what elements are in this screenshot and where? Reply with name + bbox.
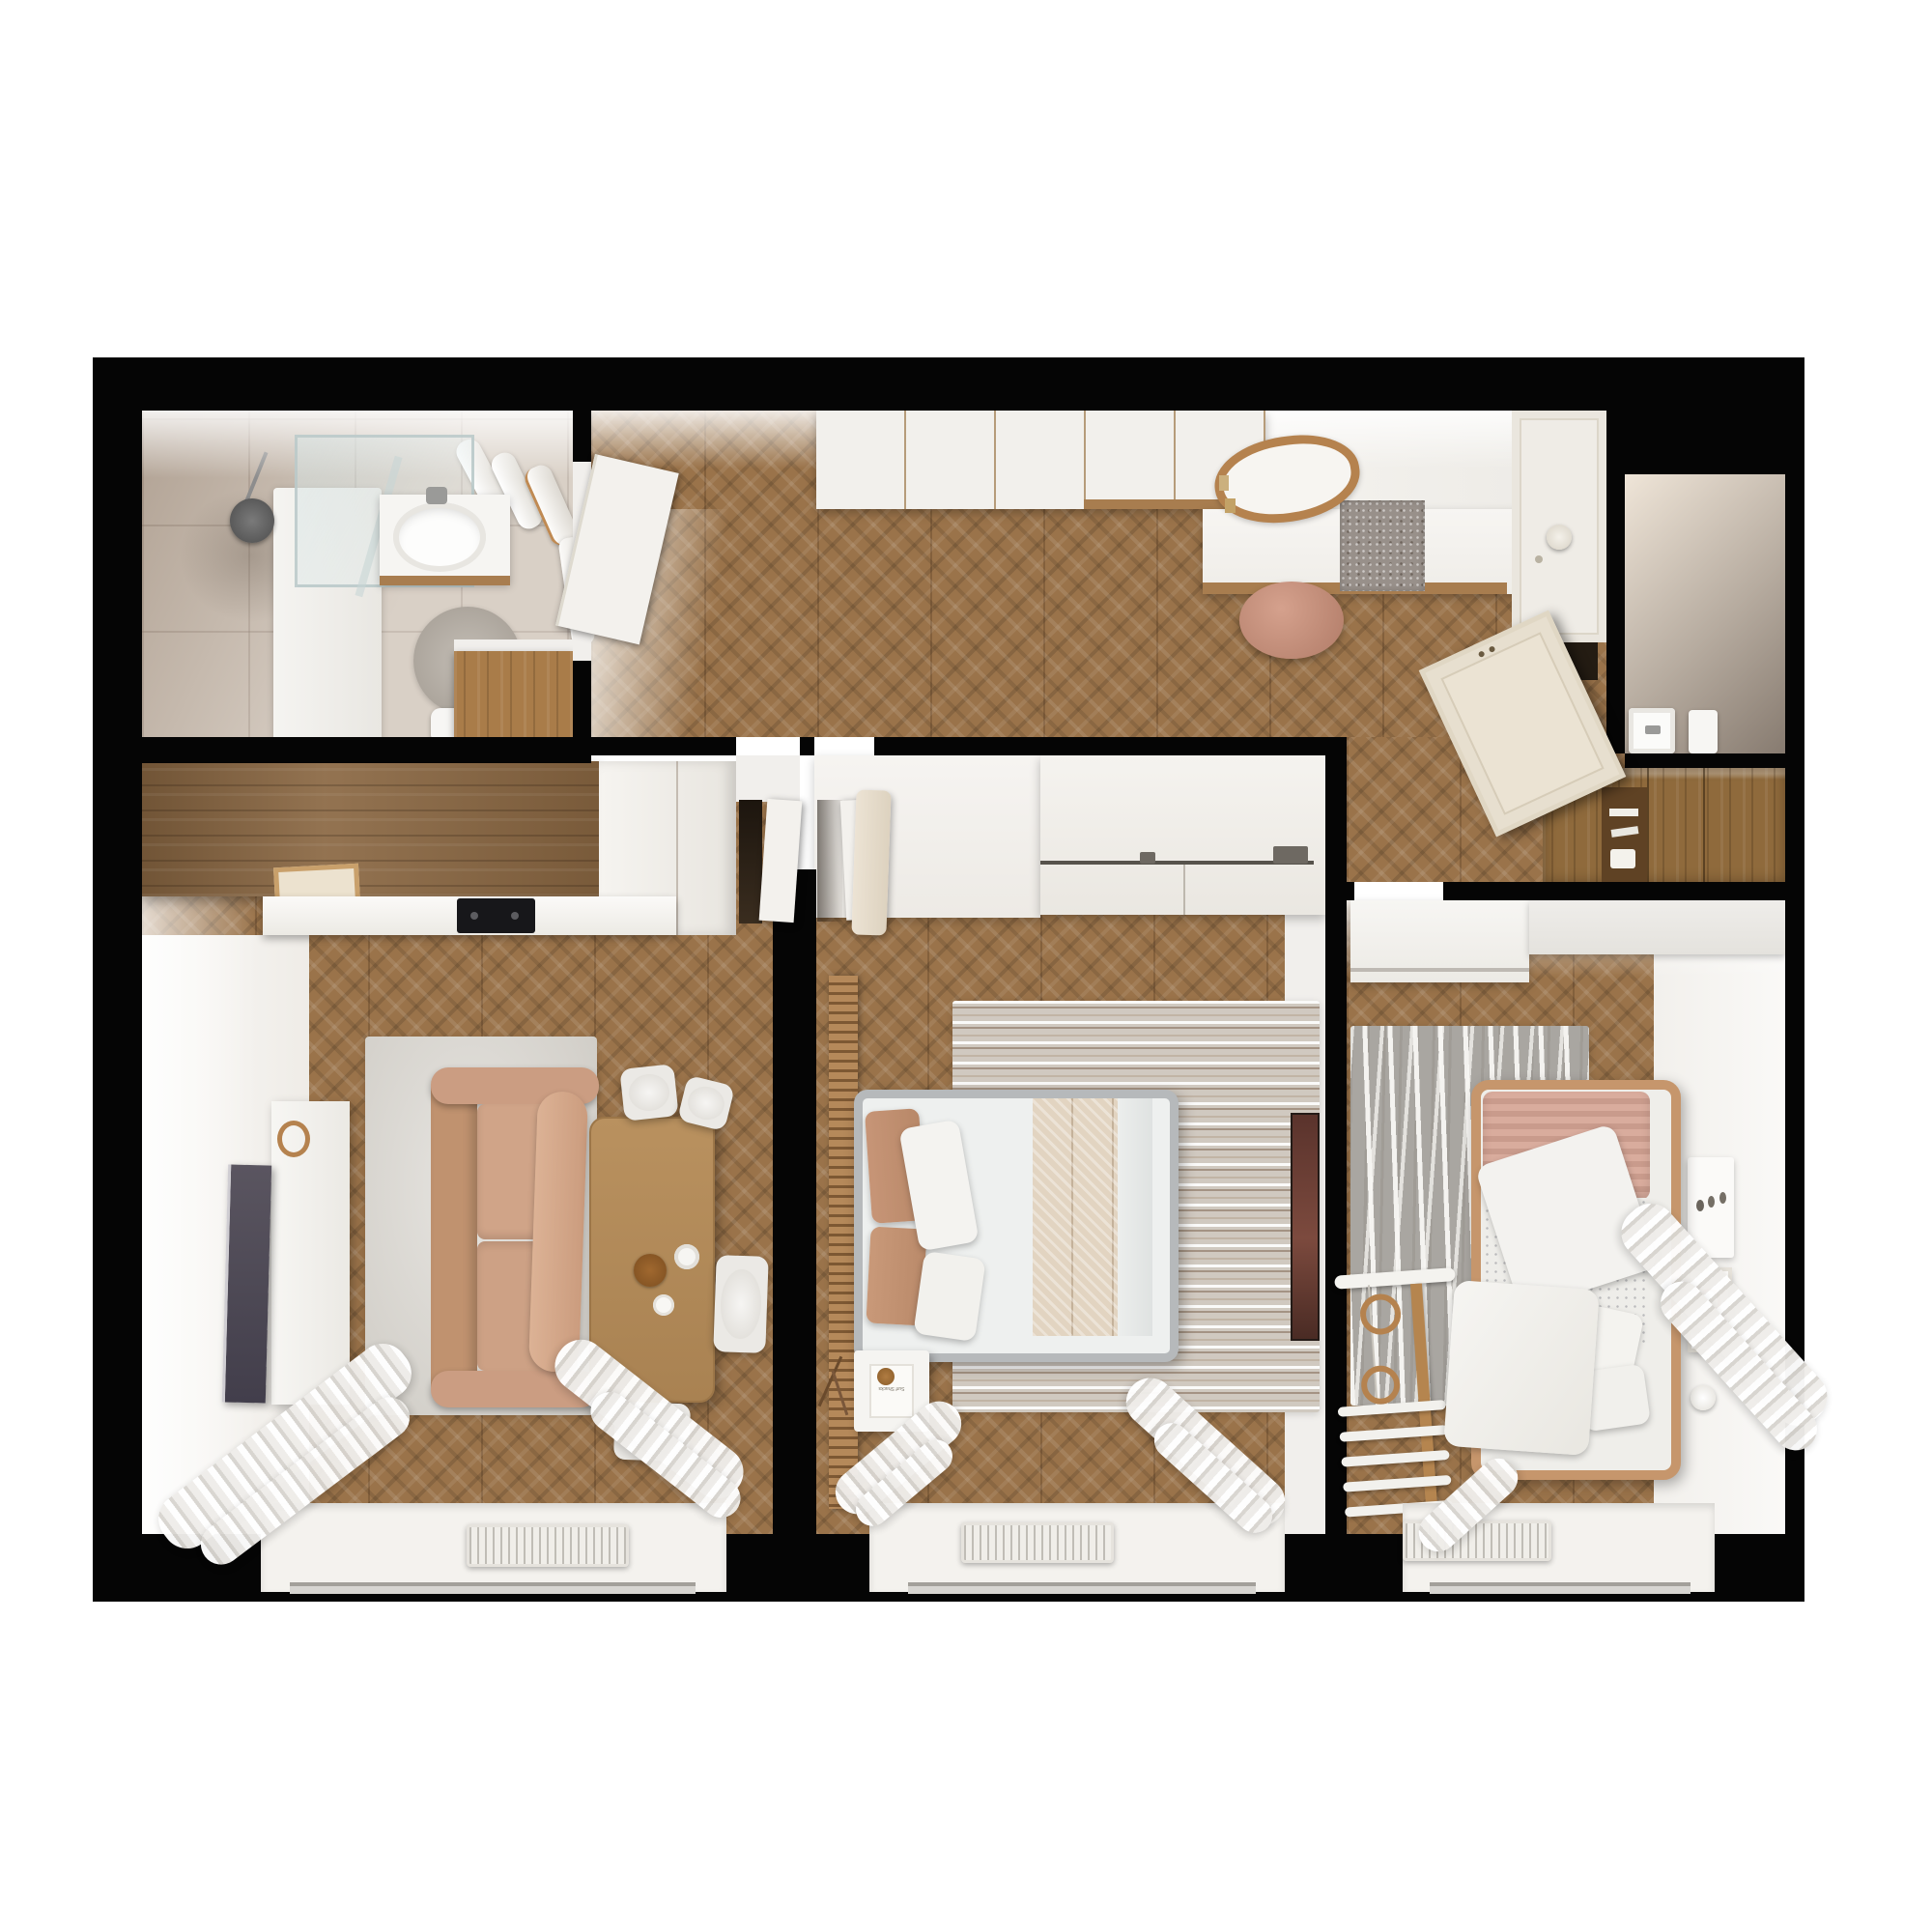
- kids-window-glass: [1430, 1582, 1690, 1594]
- door-keyhole: [1535, 555, 1543, 563]
- book-title: Surf Shacks: [873, 1385, 910, 1391]
- living-door-opening: [739, 800, 762, 923]
- burner-1: [470, 912, 478, 920]
- front-door-face: [1512, 411, 1606, 642]
- wc-fixture: [1689, 710, 1718, 753]
- doormat: [1340, 500, 1425, 591]
- bed-mattress-edge: [1118, 1098, 1152, 1336]
- door-hinge-1: [1478, 650, 1486, 658]
- living-radiator: [467, 1524, 629, 1567]
- perfume-bottle-1: [1219, 475, 1229, 491]
- sliding-wardrobe: [1040, 755, 1325, 915]
- bedroom-radiator: [961, 1522, 1114, 1563]
- ladder-top-bar: [1334, 1267, 1456, 1290]
- sofa-backrest: [431, 1067, 477, 1407]
- wall-left: [93, 357, 142, 1602]
- wall-hall-living: [591, 737, 736, 755]
- cup-on-book: [877, 1368, 895, 1385]
- bedroom-wall-art: [1291, 1113, 1320, 1341]
- cabinet-lip: [1350, 968, 1529, 972]
- rail-hardware-1: [1273, 846, 1308, 864]
- socket-1: [1696, 1200, 1704, 1211]
- book: Surf Shacks: [869, 1364, 914, 1418]
- bedroom-window-glass: [908, 1582, 1256, 1594]
- perfume-bottle-2: [1225, 498, 1236, 513]
- living-window-glass: [290, 1582, 696, 1594]
- wall-bath-hall-lower: [573, 661, 591, 739]
- rail-hardware-2: [1140, 852, 1155, 864]
- sink-faucet: [426, 487, 447, 504]
- dresser-body: [454, 651, 573, 739]
- wardrobe-panel-gap: [1183, 865, 1185, 915]
- wall-wc-bottom: [1625, 753, 1785, 768]
- wall-top: [93, 357, 1804, 411]
- door-hinge-2: [1489, 645, 1496, 653]
- kids-duvet: [1443, 1280, 1600, 1456]
- cabinet-divider-3: [1703, 768, 1705, 882]
- apartment-floorplan-render: Surf Shacks: [0, 0, 1932, 1932]
- stand-handle: [277, 1121, 310, 1157]
- bathroom-dresser: [454, 639, 573, 739]
- gym-ring-2: [1360, 1364, 1402, 1406]
- hanging-coat: [851, 789, 891, 935]
- wc-faucet: [1645, 725, 1661, 734]
- wall-living-bedroom: [773, 869, 816, 1534]
- socket-3: [1719, 1192, 1726, 1204]
- kids-wall-cabinet: [1350, 900, 1529, 982]
- wall-door-post: [800, 737, 814, 755]
- vanity-wood-edge: [380, 576, 510, 585]
- snack-bowl: [634, 1254, 667, 1287]
- bed-throw: [1033, 1098, 1118, 1336]
- wall-bedroom-top: [874, 737, 1325, 755]
- plate: [674, 1244, 699, 1269]
- cooktop: [457, 898, 535, 933]
- bathroom-vanity: [380, 495, 510, 583]
- chair-seat: [627, 1071, 671, 1113]
- burner-2: [511, 912, 519, 920]
- sink-basin: [393, 502, 486, 572]
- cabinet-gap: [676, 761, 678, 935]
- shelf-item-2: [1611, 826, 1639, 838]
- bedroom-door-shadow: [817, 800, 842, 922]
- sofa-long-pillow: [528, 1091, 588, 1373]
- chair-seat: [720, 1268, 762, 1339]
- wall-bath-hall-upper: [573, 411, 591, 462]
- cup: [653, 1294, 674, 1316]
- door-knob: [1547, 525, 1572, 550]
- wc-sink: [1629, 708, 1675, 753]
- wall-sconce: [1690, 1385, 1716, 1410]
- wall-wc-left: [1606, 474, 1625, 753]
- living-door-lintel: [736, 755, 800, 802]
- wall-kids-top-a: [1347, 882, 1354, 900]
- kids-desk-shelf: [1529, 900, 1785, 954]
- hall-wardrobe: [816, 411, 1265, 509]
- ladder-rail: [1410, 1283, 1437, 1505]
- wall-kids-top-b: [1443, 882, 1785, 900]
- wall-top-right-block: [1606, 357, 1804, 474]
- pillow-white-2: [913, 1251, 985, 1342]
- socket-2: [1708, 1196, 1715, 1207]
- chair-right: [713, 1255, 768, 1353]
- gym-ring-1: [1359, 1293, 1403, 1336]
- chair-top: [619, 1064, 678, 1122]
- tv-stand: [271, 1101, 350, 1405]
- shelf-item-1: [1609, 809, 1638, 816]
- kitchen-wood-unit: [142, 761, 599, 896]
- open-shelf: [1602, 787, 1647, 882]
- wall-bath-living: [93, 737, 591, 763]
- pouf: [1239, 582, 1344, 659]
- shelf-item-3: [1610, 849, 1635, 868]
- shower-head: [230, 498, 274, 543]
- tv: [222, 1164, 271, 1403]
- dresser-top-edge: [454, 639, 573, 651]
- double-bed: [854, 1090, 1179, 1362]
- cabinet-divider-2: [1647, 768, 1649, 882]
- chair-seat: [684, 1083, 727, 1124]
